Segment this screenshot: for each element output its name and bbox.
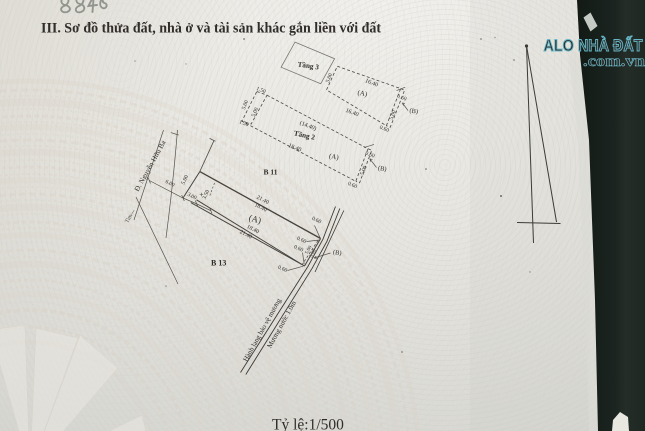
svg-text:B 11: B 11 [264,168,278,177]
svg-text:16.40: 16.40 [344,108,359,118]
svg-text:1.50: 1.50 [255,86,266,95]
svg-text:B 13: B 13 [211,259,226,268]
svg-text:(B): (B) [409,107,419,115]
svg-text:18.40: 18.40 [287,143,302,153]
svg-text:(A): (A) [248,213,263,226]
svg-text:(A): (A) [328,152,340,162]
svg-text:0.60: 0.60 [311,216,322,225]
svg-text:5.00: 5.00 [359,165,368,176]
svg-text:0.60: 0.60 [296,236,307,245]
svg-text:1.50: 1.50 [238,119,249,128]
svg-text:5.00: 5.00 [251,107,260,118]
svg-text:Đ. Nguyễn Hữu Ba: Đ. Nguyễn Hữu Ba [133,138,168,193]
svg-text:(A): (A) [357,89,369,99]
svg-text:0.60: 0.60 [293,244,304,253]
svg-text:0.60: 0.60 [379,125,390,134]
svg-text:6.00: 6.00 [164,179,176,189]
svg-text:0.60: 0.60 [347,181,358,190]
svg-text:16.40: 16.40 [364,78,379,88]
svg-text:(B): (B) [332,249,342,257]
svg-text:(B): (B) [377,165,387,173]
svg-text:5.00: 5.00 [181,174,191,185]
svg-text:0.60: 0.60 [396,94,407,103]
svg-text:0.60: 0.60 [277,265,288,274]
svg-text:5.00: 5.00 [241,99,250,110]
svg-text:0.60: 0.60 [364,151,375,160]
svg-text:Tầng 3: Tầng 3 [297,60,320,72]
